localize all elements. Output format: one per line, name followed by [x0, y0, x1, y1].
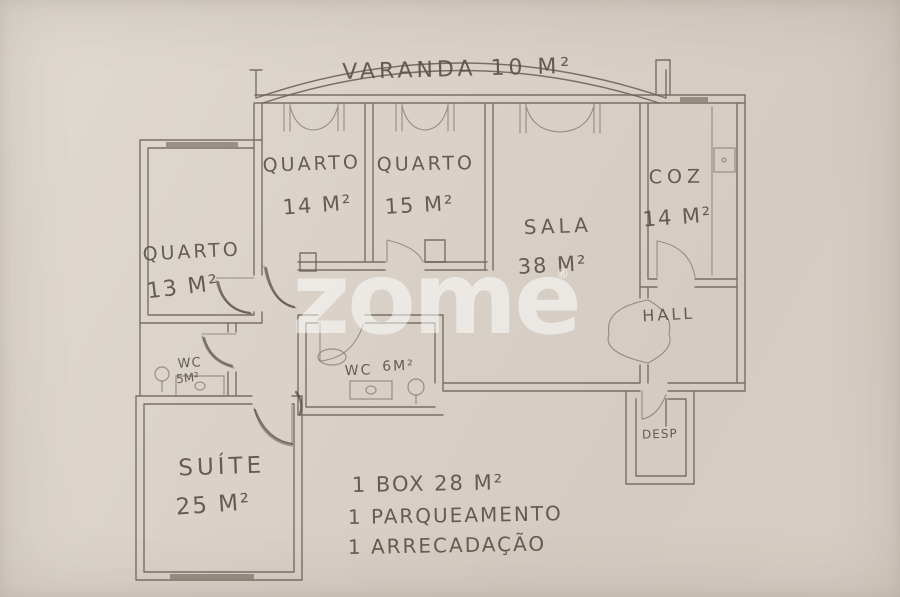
- window-suite: [170, 574, 254, 579]
- sink-icon: [155, 367, 169, 381]
- room-label-desp: DESP: [642, 426, 678, 441]
- floorplan-photo: VARANDA10 M² QUARTO 13 M² QUARTO 14 M² Q…: [0, 0, 900, 597]
- kitchen-fixtures: [712, 107, 735, 275]
- appliance-icon: [714, 148, 735, 172]
- appliance-knob: [722, 158, 726, 162]
- wc6-area: 6M²: [382, 358, 415, 375]
- wc6-name: WC: [344, 362, 372, 379]
- room-label-hall: HALL: [642, 304, 696, 326]
- room-label-varanda: VARANDA10 M²: [342, 54, 574, 85]
- room-label-quarto13-area: 13 M²: [146, 271, 221, 305]
- varanda-name: VARANDA: [342, 57, 477, 86]
- zome-watermark-registered: ®: [556, 267, 569, 282]
- zome-watermark: zome: [292, 240, 579, 357]
- room-label-wc5-area: 5M²: [176, 370, 200, 386]
- room-label-quarto14-area: 14 M²: [282, 191, 353, 220]
- floorplan-svg: VARANDA10 M² QUARTO 13 M² QUARTO 14 M² Q…: [0, 0, 900, 597]
- note-box: 1 BOX 28 M²: [352, 470, 505, 497]
- bath-icon: [350, 381, 392, 399]
- room-label-quarto14-name: QUARTO: [262, 151, 361, 176]
- window-quarto13: [166, 142, 238, 147]
- note-parqueamento: 1 PARQUEAMENTO: [348, 501, 563, 529]
- room-label-wc6: WC6M²: [344, 358, 415, 379]
- room-label-quarto15-name: QUARTO: [377, 152, 476, 176]
- note-arrecadacao: 1 ARRECADAÇÃO: [348, 532, 547, 559]
- room-label-coz-name: COZ: [649, 166, 706, 189]
- toilet-icon: [408, 379, 424, 395]
- varanda-area: 10 M²: [490, 54, 573, 81]
- room-label-coz-area: 14 M²: [642, 203, 713, 232]
- room-label-suite-area: 25 M²: [175, 489, 252, 520]
- drain-icon: [366, 386, 376, 394]
- room-label-quarto15-area: 15 M²: [384, 191, 455, 219]
- room-label-quarto13-name: QUARTO: [142, 238, 241, 265]
- room-label-wc5-name: WC: [177, 355, 202, 372]
- balcony-door-icon: [284, 103, 600, 133]
- window-coz: [680, 97, 708, 102]
- room-label-sala-name: SALA: [523, 213, 592, 239]
- room-label-suite-name: SUÍTE: [178, 450, 266, 481]
